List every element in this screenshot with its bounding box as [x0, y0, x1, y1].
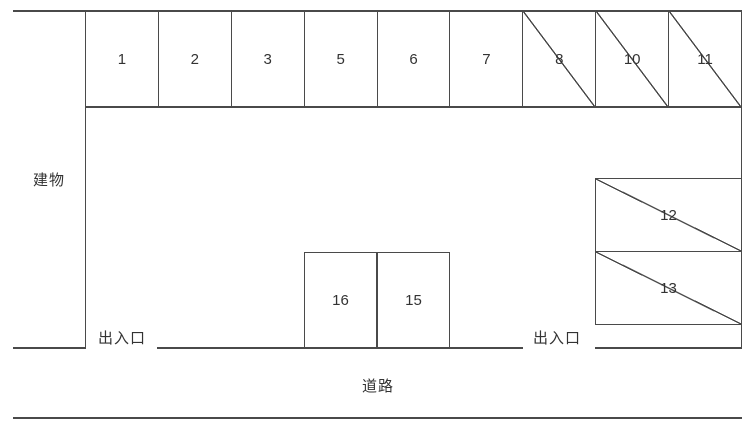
- parking-space-16: 16: [305, 253, 378, 347]
- space-number: 2: [191, 51, 199, 68]
- space-number: 7: [482, 51, 490, 68]
- parking-space-7: 7: [450, 11, 523, 107]
- parking-space-15: 15: [378, 253, 449, 347]
- parking-space-2: 2: [159, 11, 232, 107]
- building-base-line: [13, 347, 86, 349]
- parking-space-10: 10: [596, 11, 669, 107]
- parking-space-1: 1: [86, 11, 159, 107]
- parking-space-5: 5: [305, 11, 378, 107]
- parking-space-12: 12: [595, 178, 742, 252]
- top-parking-row: 1 2 3 5 6 7 8 10 11: [86, 11, 741, 107]
- space-number: 15: [405, 292, 422, 309]
- parking-space-3: 3: [232, 11, 305, 107]
- road-label: 道路: [362, 375, 394, 396]
- parking-space-8: 8: [523, 11, 596, 107]
- parking-space-13: 13: [595, 252, 742, 325]
- parking-layout-diagram: 1 2 3 5 6 7 8 10 11 16 15 12 13 建物 出入口 出…: [0, 0, 750, 435]
- space-number: 6: [409, 51, 417, 68]
- space-number: 16: [332, 292, 349, 309]
- space-number: 12: [660, 207, 677, 224]
- right-parking-block: 12 13: [595, 178, 742, 325]
- space-number: 11: [697, 51, 713, 68]
- space-number: 5: [336, 51, 344, 68]
- entrance-left-label: 出入口: [98, 327, 146, 348]
- space-number: 1: [118, 51, 126, 68]
- space-number: 10: [624, 51, 641, 68]
- space-number: 3: [264, 51, 272, 68]
- road-edge-line: [13, 417, 742, 419]
- entrance-right-ground-line: [595, 347, 742, 349]
- space-number: 13: [660, 280, 677, 297]
- building-label: 建物: [33, 169, 65, 190]
- parking-space-11: 11: [669, 11, 741, 107]
- middle-parking-block: 16 15: [304, 252, 450, 348]
- entrance-right-label: 出入口: [533, 327, 581, 348]
- space-number: 8: [555, 51, 563, 68]
- parking-space-6: 6: [378, 11, 451, 107]
